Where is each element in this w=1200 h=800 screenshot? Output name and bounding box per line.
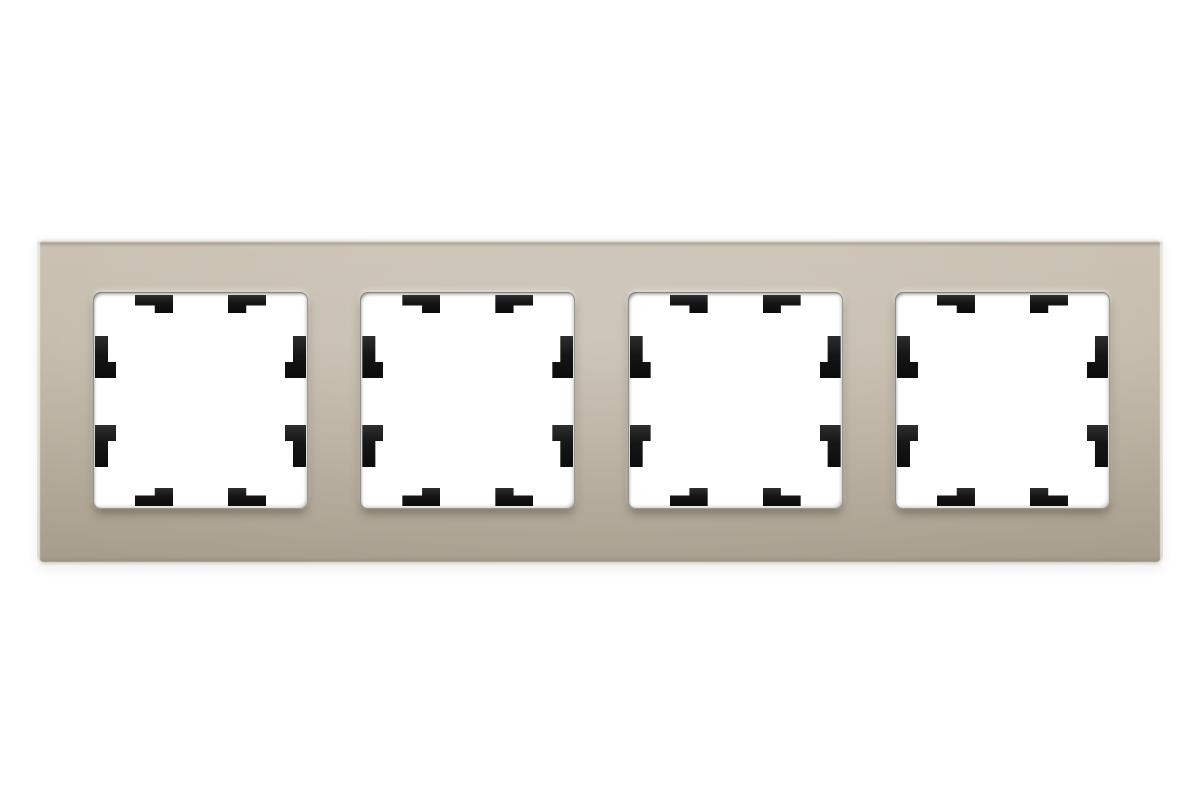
retention-clip-right-upper <box>1087 336 1108 378</box>
retention-clip-bottom-right <box>495 488 533 506</box>
retention-clip-right-lower <box>1087 425 1108 467</box>
retention-clip-right-upper <box>820 336 841 378</box>
retention-clip-left-lower <box>897 425 918 467</box>
retention-clip-bottom-left <box>670 488 708 506</box>
retention-clip-top-left <box>402 295 440 313</box>
retention-clip-top-left <box>135 295 173 313</box>
module-windows <box>93 292 1110 509</box>
retention-clip-right-lower <box>820 425 841 467</box>
retention-clip-left-upper <box>630 336 651 378</box>
retention-clip-left-upper <box>362 336 383 378</box>
retention-clip-top-left <box>937 295 975 313</box>
retention-clip-bottom-left <box>937 488 975 506</box>
retention-clip-bottom-right <box>1030 488 1068 506</box>
retention-clip-bottom-left <box>135 488 173 506</box>
frame-window-1 <box>93 292 308 509</box>
frame-window-2 <box>360 292 575 509</box>
retention-clip-left-lower <box>630 425 651 467</box>
retention-clip-bottom-right <box>228 488 266 506</box>
product-photo <box>0 0 1200 800</box>
retention-clip-top-right <box>495 295 533 313</box>
retention-clip-top-right <box>1030 295 1068 313</box>
retention-clip-bottom-right <box>763 488 801 506</box>
frame-plate <box>37 238 1163 565</box>
retention-clip-left-lower <box>95 425 116 467</box>
retention-clip-left-lower <box>362 425 383 467</box>
retention-clip-left-upper <box>897 336 918 378</box>
retention-clip-top-right <box>763 295 801 313</box>
retention-clip-top-left <box>670 295 708 313</box>
retention-clip-right-upper <box>285 336 306 378</box>
frame-window-4 <box>895 292 1110 509</box>
retention-clip-bottom-left <box>402 488 440 506</box>
retention-clip-right-lower <box>552 425 573 467</box>
retention-clip-right-upper <box>552 336 573 378</box>
retention-clip-left-upper <box>95 336 116 378</box>
retention-clip-right-lower <box>285 425 306 467</box>
frame-window-3 <box>628 292 843 509</box>
retention-clip-top-right <box>228 295 266 313</box>
